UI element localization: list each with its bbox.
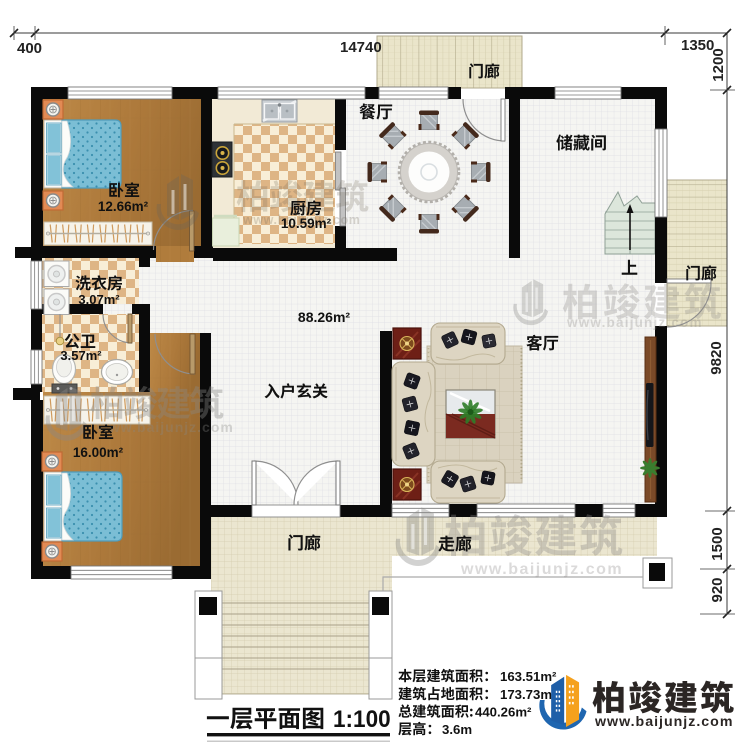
svg-text:163.51m²: 163.51m² [500,669,557,684]
svg-text:3.07m²: 3.07m² [78,292,120,307]
svg-text:1200: 1200 [710,48,727,81]
svg-text:173.73m²: 173.73m² [500,687,557,702]
svg-text:88.26m²: 88.26m² [298,309,350,325]
svg-text:1:100: 1:100 [333,705,391,732]
svg-text:920: 920 [709,577,726,602]
svg-text:www.baijunjz.com: www.baijunjz.com [566,315,703,330]
svg-text:9820: 9820 [708,341,725,374]
svg-text:12.66m²: 12.66m² [98,199,149,214]
svg-text:3.6m: 3.6m [442,722,472,737]
svg-text:www.baijunjz.com: www.baijunjz.com [460,561,623,578]
svg-text:1500: 1500 [709,527,726,560]
svg-text:3.57m²: 3.57m² [60,348,102,363]
svg-text:10.59m²: 10.59m² [281,216,332,231]
svg-text:440.26m²: 440.26m² [475,705,532,720]
svg-text:www.baijunjz.com: www.baijunjz.com [594,714,733,730]
svg-text:400: 400 [17,40,42,57]
svg-text:16.00m²: 16.00m² [73,445,124,460]
svg-text:14740: 14740 [340,39,382,56]
svg-text:www.baijunjz.com: www.baijunjz.com [96,419,234,435]
